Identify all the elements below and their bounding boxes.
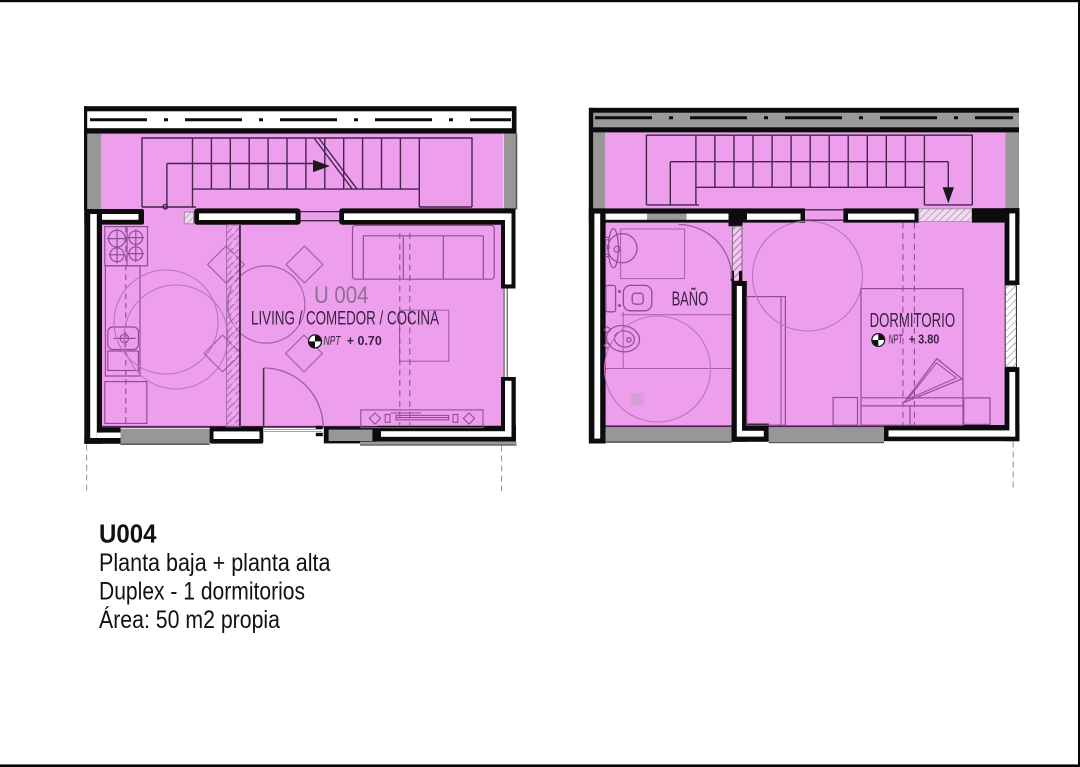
svg-text:BAÑO: BAÑO <box>672 287 709 311</box>
svg-text:Duplex - 1 dormitorios: Duplex - 1 dormitorios <box>99 578 305 606</box>
svg-text:U 004: U 004 <box>314 282 369 309</box>
svg-text:LIVING / COMEDOR / COCINA: LIVING / COMEDOR / COCINA <box>251 308 439 330</box>
svg-text:DORMITORIO: DORMITORIO <box>870 310 956 332</box>
svg-text:U004: U004 <box>99 521 157 549</box>
svg-text:+ 3.80: + 3.80 <box>909 331 940 346</box>
svg-text:Área: 50 m2 propia: Área: 50 m2 propia <box>99 605 280 634</box>
svg-text:NPT: NPT <box>324 334 342 348</box>
svg-text:+ 0.70: + 0.70 <box>347 333 382 348</box>
svg-text:Planta baja + planta alta: Planta baja + planta alta <box>99 549 331 577</box>
svg-text:NPT: NPT <box>889 332 904 346</box>
